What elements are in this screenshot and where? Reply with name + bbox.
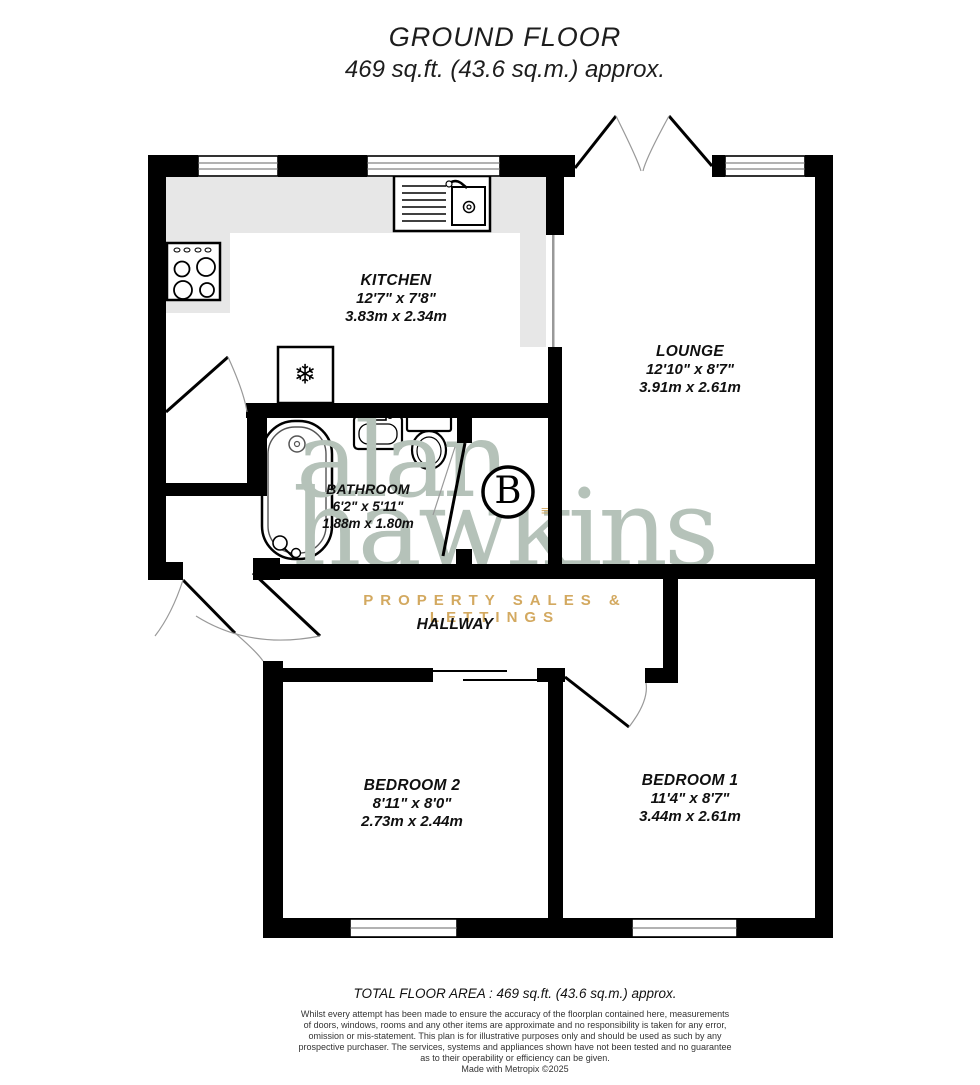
disclaimer-line: omission or mis-statement. This plan is … (45, 1031, 980, 1042)
watermark-line1: alan (296, 408, 506, 513)
french-door-left-leaf (575, 116, 616, 168)
front-door-leaf (183, 580, 235, 633)
disclaimer-line: of doors, windows, rooms and any other i… (45, 1020, 980, 1031)
room-dims-imperial: 11'4" x 8'7" (639, 790, 741, 808)
room-dims-imperial: 12'7" x 7'8" (345, 290, 447, 308)
door-swing-arc (616, 116, 641, 171)
room-name: LOUNGE (639, 343, 741, 361)
room-label-hallway: HALLWAY (417, 616, 494, 634)
disclaimer-line: Whilst every attempt has been made to en… (45, 1009, 980, 1020)
fridge-freezer-icon: ❄ (294, 360, 317, 391)
floor-area: 469 sq.ft. (43.6 sq.m.) approx. (0, 56, 980, 84)
door-swing-arc (433, 447, 455, 515)
kitchen-counter (166, 177, 546, 347)
room-name: HALLWAY (417, 616, 494, 634)
floorplan-page: GROUND FLOOR 469 sq.ft. (43.6 sq.m.) app… (0, 0, 980, 1085)
boiler-symbol: B (494, 469, 521, 512)
made-with-metropix: Made with Metropix ©2025 (45, 1064, 980, 1075)
labels-layer: KITCHEN 12'7" x 7'8" 3.83m x 2.34m LOUNG… (0, 0, 980, 1085)
footer: TOTAL FLOOR AREA : 469 sq.ft. (43.6 sq.m… (45, 986, 980, 1075)
watermark: alan hawkins ≡ PROPERTY SALES & LETTINGS (0, 0, 980, 1085)
room-label-bathroom: BATHROOM 6'2" x 5'11" 1.88m x 1.80m (322, 481, 414, 532)
kitchen-sink-icon (394, 176, 490, 231)
room-name: BEDROOM 1 (639, 772, 741, 790)
door-swing-arc (155, 580, 183, 636)
bathroom-door-leaf (253, 573, 320, 636)
door-swing-arc (235, 633, 263, 661)
floor-name: GROUND FLOOR (0, 22, 980, 53)
windows (198, 156, 805, 937)
room-dims-metric: 3.83m x 2.34m (345, 308, 447, 326)
room-dims-imperial: 12'10" x 8'7" (639, 361, 741, 379)
fridge-icon (278, 347, 333, 403)
toilet-icon (407, 414, 451, 469)
room-name: BEDROOM 2 (361, 777, 463, 795)
room-label-bedroom2: BEDROOM 2 8'11" x 8'0" 2.73m x 2.44m (361, 777, 463, 831)
door-swing-arc (228, 357, 247, 412)
room-label-bedroom1: BEDROOM 1 11'4" x 8'7" 3.44m x 2.61m (639, 772, 741, 826)
total-floor-area: TOTAL FLOOR AREA : 469 sq.ft. (43.6 sq.m… (45, 986, 980, 1001)
disclaimer: Whilst every attempt has been made to en… (45, 1009, 980, 1075)
disclaimer-line: prospective purchaser. The services, sys… (45, 1042, 980, 1053)
disclaimer-line: as to their operability or efficiency ca… (45, 1053, 980, 1064)
boiler-circle (483, 467, 533, 517)
kitchen-door-leaf (166, 357, 228, 412)
cupboard-door-leaf (443, 443, 465, 556)
room-dims-metric: 1.88m x 1.80m (322, 515, 414, 532)
watermark-logo-mark: ≡ (541, 503, 548, 518)
watermark-line2: hawkins (292, 476, 715, 584)
bedroom1-door-leaf (565, 677, 629, 727)
room-name: KITCHEN (345, 272, 447, 290)
watermark-tagline: PROPERTY SALES & LETTINGS (296, 592, 694, 626)
french-door-right-leaf (669, 116, 712, 166)
doors (155, 116, 712, 727)
room-dims-metric: 2.73m x 2.44m (361, 813, 463, 831)
room-dims-imperial: 8'11" x 8'0" (361, 795, 463, 813)
door-swing-arc (629, 683, 646, 727)
room-dims-metric: 3.91m x 2.61m (639, 379, 741, 397)
room-name: BATHROOM (322, 481, 414, 498)
fixtures-layer (0, 0, 980, 1085)
door-swing-arc (196, 616, 320, 640)
basin-icon (354, 411, 402, 449)
room-label-kitchen: KITCHEN 12'7" x 7'8" 3.83m x 2.34m (345, 272, 447, 326)
bathtub-icon (262, 421, 332, 559)
room-dims-imperial: 6'2" x 5'11" (322, 498, 414, 515)
open-doorway-line (552, 235, 555, 347)
walls (148, 155, 833, 938)
room-dims-metric: 3.44m x 2.61m (639, 808, 741, 826)
stove-icon (167, 243, 220, 300)
page-title: GROUND FLOOR 469 sq.ft. (43.6 sq.m.) app… (0, 22, 980, 84)
room-label-lounge: LOUNGE 12'10" x 8'7" 3.91m x 2.61m (639, 343, 741, 397)
door-swing-arc (643, 116, 669, 171)
walls-layer (0, 0, 980, 1085)
